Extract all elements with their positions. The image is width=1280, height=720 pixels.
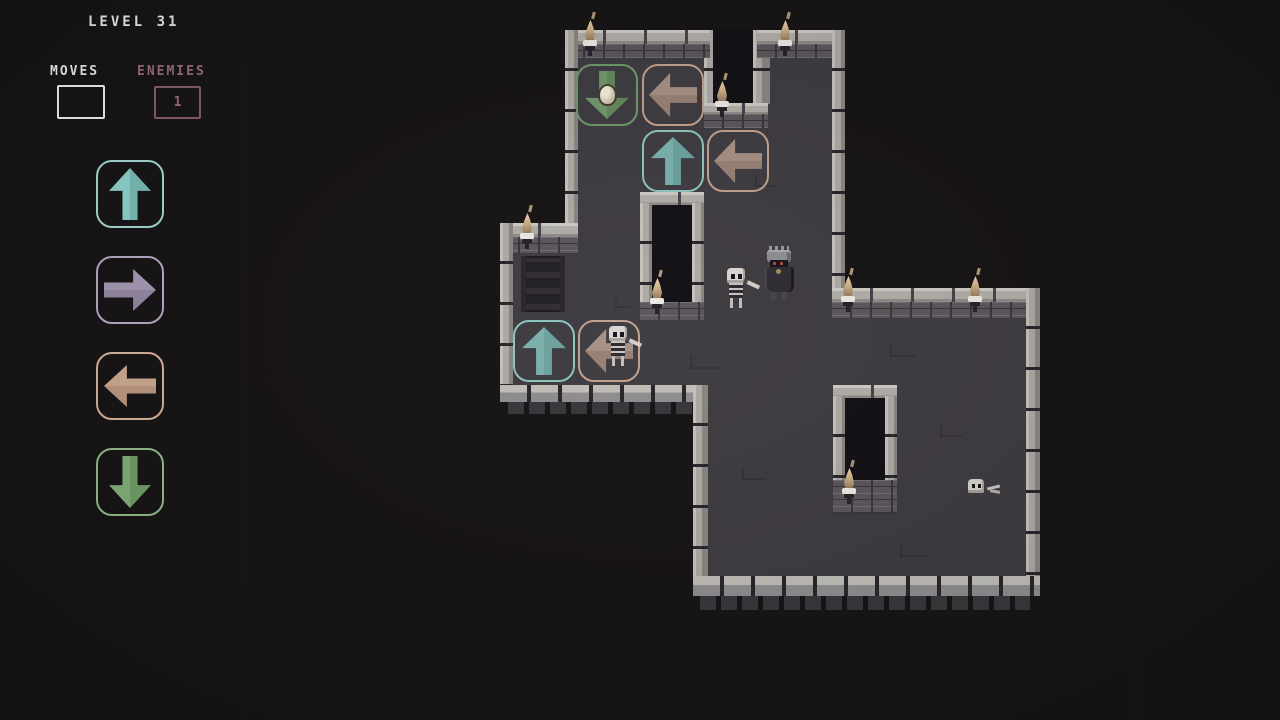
- floor-center-hall: [708, 390, 833, 578]
- egg-item: [598, 84, 617, 106]
- torch-icon: [841, 460, 857, 510]
- board-tile-up-teal[interactable]: [642, 130, 704, 192]
- skeleton-enemy: [604, 326, 636, 370]
- wall-stone-row: [500, 385, 708, 402]
- left-arrow-icon: [714, 139, 762, 183]
- left-arrow-icon: [649, 73, 697, 117]
- board-tile-left-tan[interactable]: [707, 130, 769, 192]
- torch-icon: [840, 268, 856, 318]
- torch-icon: [582, 12, 598, 62]
- wall-shadow-row: [700, 596, 1030, 610]
- up-arrow-icon: [522, 327, 566, 375]
- up-arrow-icon: [651, 137, 695, 185]
- game-screen: { "hud": { "level_label": "LEVEL 31", "m…: [0, 0, 1280, 720]
- move-button-up[interactable]: [96, 160, 164, 228]
- floor-grate: [521, 256, 565, 312]
- floor-crack: [615, 298, 631, 308]
- skull-debris: [968, 478, 1004, 496]
- torch-icon: [777, 12, 793, 62]
- floor-crack: [900, 545, 928, 557]
- skeleton-enemy: [722, 268, 754, 312]
- wall-column: [565, 30, 578, 225]
- doorway-column: [885, 396, 897, 486]
- board-tile-left-tan[interactable]: [642, 64, 704, 126]
- torch-icon: [967, 268, 983, 318]
- wall-stone-row: [693, 576, 1040, 596]
- level-title: LEVEL 31: [88, 14, 179, 30]
- wall-brick-face: [832, 302, 1026, 318]
- left-arrow-icon: [104, 365, 156, 407]
- enemies-counter: 1: [154, 86, 201, 119]
- floor-crack: [940, 425, 962, 437]
- floor-crack: [690, 355, 718, 369]
- down-arrow-icon: [109, 456, 151, 508]
- wall-column: [500, 223, 513, 390]
- floor-crack: [742, 468, 766, 480]
- torch-icon: [649, 270, 665, 320]
- knight-character: [761, 246, 797, 302]
- up-arrow-icon: [109, 168, 151, 220]
- floor-crack: [890, 345, 916, 357]
- right-arrow-icon: [104, 269, 156, 311]
- doorway-column: [692, 203, 704, 303]
- move-button-left[interactable]: [96, 352, 164, 420]
- move-button-down[interactable]: [96, 448, 164, 516]
- wall-shadow-row: [508, 402, 704, 414]
- torch-icon: [519, 205, 535, 255]
- moves-counter: [57, 85, 105, 119]
- wall-column: [1026, 288, 1040, 594]
- wall-stone-row: [832, 288, 1026, 302]
- enemies-label: ENEMIES: [137, 64, 206, 79]
- wall-column: [832, 30, 845, 290]
- moves-label: MOVES: [50, 64, 99, 79]
- move-button-right[interactable]: [96, 256, 164, 324]
- wall-column: [693, 385, 708, 585]
- board-tile-up-teal[interactable]: [513, 320, 575, 382]
- torch-icon: [714, 73, 730, 123]
